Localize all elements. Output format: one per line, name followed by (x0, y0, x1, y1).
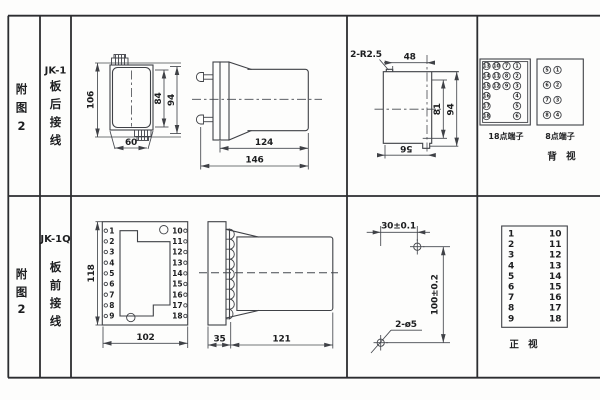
dim-35: 35 (213, 335, 225, 345)
dim-30: 30±0.1 (381, 222, 416, 232)
terminal-number: 2 (515, 74, 518, 80)
terminal-number: 2 (556, 83, 559, 89)
terminal-number: 16 (483, 94, 490, 100)
dim-56: 56 (400, 143, 412, 153)
terminal-number: 1 (556, 68, 559, 74)
terminal-number: 15 (483, 84, 490, 90)
dim-124: 124 (255, 138, 273, 148)
fig-label-char: 图 (16, 285, 28, 299)
terminal-number: 7 (109, 290, 114, 299)
fig-label-char: 附 (16, 267, 28, 281)
wiring-char: 板 (50, 260, 62, 274)
terminal-number: 3 (556, 98, 559, 104)
table-number: 1 (508, 230, 514, 240)
table-number: 15 (549, 283, 562, 293)
jk1-front-view-drawing: 106 84 94 60 (87, 55, 182, 150)
manual-page-figure: 附 图 2 JK-1 板 后 接 线 (0, 0, 600, 400)
terminal-number: 8 (109, 301, 114, 310)
label-2-r2.5: 2-R2.5 (350, 50, 382, 60)
table-number: 17 (549, 304, 562, 314)
table-number: 4 (508, 261, 514, 271)
jk1-cutout-drawing: 48 2-R2.5 81 94 56 (350, 50, 458, 159)
table-number: 10 (549, 230, 562, 240)
bottom-row-header: 附 图 2 JK-1Q 板 前 接 线 (16, 234, 71, 328)
terminal-number: 1 (109, 226, 114, 235)
dim-94: 94 (167, 94, 177, 106)
terminal-number: 3 (515, 84, 518, 90)
table-number: 16 (549, 293, 562, 303)
terminal-number: 12 (493, 84, 500, 90)
stud-bottom (196, 115, 213, 124)
table-number: 13 (549, 261, 562, 271)
wiring-char: 板 (50, 79, 62, 93)
table-number: 7 (508, 293, 514, 303)
front-view-label: 正 视 (509, 339, 540, 351)
jk1q-front-view-drawing: 1 2 3 4 5 6 7 8 9 10 11 12 13 14 15 16 1… (87, 222, 188, 348)
dim-84: 84 (154, 92, 164, 104)
terminal-number: 12 (172, 248, 182, 257)
terminal-number: 13 (172, 258, 182, 267)
table-number: 18 (549, 314, 562, 324)
terminal-number: 14 (483, 74, 490, 80)
terminal-number: 17 (483, 104, 490, 110)
terminal-number: 10 (172, 226, 182, 235)
drilling-template-drawing: 30±0.1 100±0.2 2-ø5 (367, 222, 450, 354)
terminal-number: 18 (172, 312, 182, 321)
terminal-number: 7 (505, 64, 508, 70)
jk1-side-view-drawing: 124 146 (192, 62, 322, 170)
terminal-number: 5 (545, 68, 548, 74)
wiring-char: 接 (50, 296, 62, 310)
table-number: 6 (508, 283, 514, 293)
fig-label-char: 图 (16, 101, 28, 115)
terminal-number: 1 (515, 64, 518, 70)
terminal-number: 7 (545, 98, 548, 104)
terminal-circles: 13 14 15 16 17 18 10 11 12 7 8 9 1 2 3 4… (483, 62, 521, 119)
front-right-terminals: 10 11 12 13 14 15 16 17 18 (172, 226, 187, 320)
wiring-char: 接 (50, 115, 62, 129)
dim-60: 60 (125, 138, 137, 148)
table-number: 14 (549, 272, 562, 282)
dim-94-cutout: 94 (446, 103, 456, 115)
wiring-char: 线 (50, 133, 62, 147)
stud-top (196, 73, 213, 82)
dim-48: 48 (404, 52, 416, 62)
terminal-block-18: 13 14 15 16 17 18 10 11 12 7 8 9 1 2 3 4… (480, 59, 530, 141)
dim-121: 121 (272, 335, 290, 345)
terminal-number: 17 (172, 301, 182, 310)
table-number: 8 (508, 304, 514, 314)
front-numbering-table: 1 2 3 4 5 6 7 8 9 10 11 12 13 14 15 16 1… (502, 226, 568, 351)
terminal-number: 3 (109, 248, 114, 257)
mounting-hole-top (160, 226, 168, 234)
terminal-number: 2 (109, 237, 114, 246)
mounting-hole-bottom (127, 313, 135, 321)
model-label: JK-1Q (39, 234, 70, 245)
block18-label: 18点端子 (488, 131, 523, 141)
dim-102: 102 (136, 333, 154, 343)
terminal-number: 4 (109, 258, 114, 267)
terminal-number: 18 (483, 114, 490, 120)
terminal-number: 13 (483, 64, 490, 70)
fig-label-char: 2 (17, 119, 25, 133)
dim-81: 81 (433, 103, 443, 115)
dim-146: 146 (245, 156, 263, 166)
terminal-number: 14 (172, 269, 182, 278)
jk1q-side-view-drawing: 35 121 (199, 222, 338, 349)
terminal-block-8: 5 6 7 8 1 2 3 4 8点端子 (537, 59, 583, 141)
back-view-label: 背 视 (547, 151, 578, 163)
table-number: 3 (508, 251, 514, 261)
table-number: 2 (508, 240, 514, 250)
terminal-number: 15 (172, 280, 182, 289)
table-number: 5 (508, 272, 514, 282)
table-number: 11 (549, 240, 562, 250)
model-label: JK-1 (44, 66, 67, 77)
label-2-d5: 2-ø5 (395, 320, 417, 330)
terminal-number: 9 (109, 312, 114, 321)
front-left-terminals: 1 2 3 4 5 6 7 8 9 (104, 226, 114, 320)
stud-bumps (230, 229, 235, 319)
dim-100: 100±0.2 (431, 274, 441, 315)
table-number: 9 (508, 314, 514, 324)
table-right-column: 10 11 12 13 14 15 16 17 18 (549, 230, 562, 325)
wiring-char: 后 (50, 97, 62, 111)
dim-118: 118 (87, 264, 97, 282)
top-row-header: 附 图 2 JK-1 板 后 接 线 (16, 66, 67, 148)
terminal-number: 16 (172, 290, 182, 299)
terminal-number: 5 (109, 269, 114, 278)
terminal-number: 10 (493, 64, 500, 70)
table-left-column: 1 2 3 4 5 6 7 8 9 (508, 230, 514, 325)
dim-106: 106 (87, 91, 97, 109)
terminal-number: 6 (109, 280, 114, 289)
fig-label-char: 附 (16, 82, 28, 96)
terminal-circles: 5 6 7 8 1 2 3 4 (543, 66, 561, 118)
wiring-char: 前 (50, 278, 62, 292)
table-number: 12 (549, 251, 562, 261)
terminal-number: 11 (493, 74, 500, 80)
block8-label: 8点端子 (545, 131, 575, 141)
terminal-number: 5 (515, 104, 518, 110)
wiring-char: 线 (50, 314, 62, 328)
fig-label-char: 2 (17, 302, 25, 316)
terminal-number: 11 (172, 237, 182, 246)
